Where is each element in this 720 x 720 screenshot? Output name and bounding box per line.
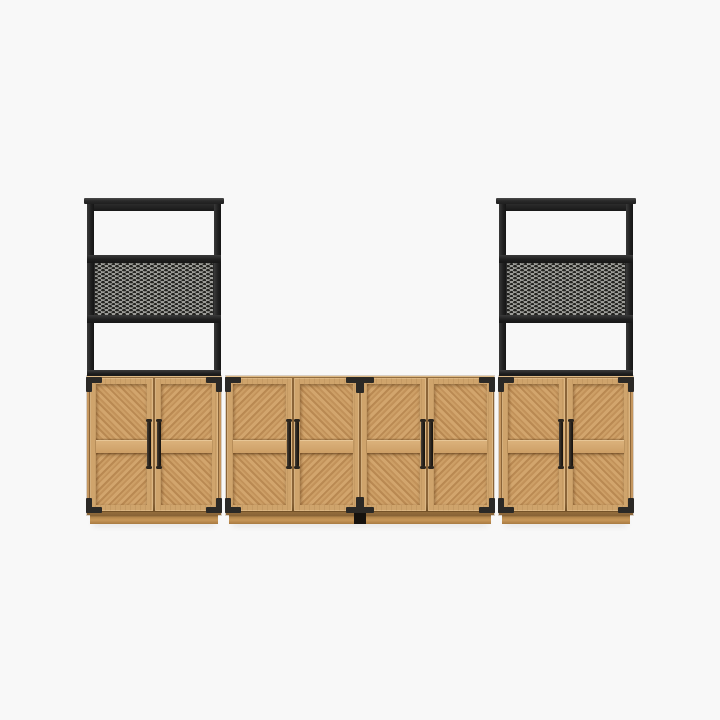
hutch-left-post (499, 200, 506, 376)
corner-bracket-bottom-right (206, 498, 222, 513)
door-panel-upper (573, 384, 624, 440)
door-panel-upper (508, 384, 559, 440)
hutch-top-beam (499, 203, 633, 211)
corner-bracket-top-left (225, 377, 241, 392)
door-handle (157, 421, 161, 467)
cabinet-plinth (90, 515, 218, 524)
hutch-top-beam (87, 203, 221, 211)
corner-bracket-top-right (206, 377, 222, 392)
corner-bracket-top-left (86, 377, 102, 392)
door-panel (300, 384, 353, 505)
console-door-1 (227, 378, 292, 511)
cabinet-right-door (155, 378, 218, 511)
console-door-4 (428, 378, 493, 511)
door-panel-upper (161, 384, 212, 440)
hutch-middle-shelf (499, 255, 633, 263)
hutch-mesh-panel (506, 261, 626, 318)
door-panel-upper (96, 384, 147, 440)
door-middle-rail (508, 440, 559, 453)
hutch-right-post (214, 200, 221, 376)
furniture-product-image (0, 0, 720, 720)
door-middle-rail (300, 440, 353, 453)
hutch-base-rail (87, 370, 221, 376)
door-panel-lower (573, 453, 624, 505)
corner-bracket-bottom-right (479, 498, 495, 513)
door-handle (559, 421, 563, 467)
corner-bracket-top-right (618, 377, 634, 392)
door-handle (287, 421, 291, 467)
door-handle (147, 421, 151, 467)
hutch-lower-shelf (87, 315, 221, 323)
plinth-center-gap (354, 513, 366, 524)
door-panel-upper (434, 384, 487, 440)
door-panel (434, 384, 487, 505)
door-middle-rail (434, 440, 487, 453)
center-bracket-bottom (346, 497, 374, 513)
hutch-lower-shelf (499, 315, 633, 323)
corner-bracket-bottom-right (618, 498, 634, 513)
door-middle-rail (367, 440, 420, 453)
hutch-middle-shelf (87, 255, 221, 263)
hutch-base-rail (499, 370, 633, 376)
right-tower-unit (496, 198, 636, 524)
door-handle (421, 421, 425, 467)
door-panel-lower (508, 453, 559, 505)
center-media-console (226, 376, 494, 524)
door-panel (573, 384, 624, 505)
door-panel (96, 384, 147, 505)
door-panel-lower (367, 453, 420, 505)
door-handle (429, 421, 433, 467)
left-tower-unit (84, 198, 224, 524)
hutch-mesh-panel (94, 261, 214, 318)
center-bracket-top (346, 377, 374, 393)
door-middle-rail (233, 440, 286, 453)
hutch-top-shelf (496, 198, 636, 204)
cabinet-left-door (502, 378, 565, 511)
right-cabinet (499, 376, 633, 524)
door-panel-upper (367, 384, 420, 440)
door-panel-upper (233, 384, 286, 440)
console-door-3 (361, 378, 426, 511)
door-panel (367, 384, 420, 505)
cabinet-left-door (90, 378, 153, 511)
corner-bracket-bottom-left (225, 498, 241, 513)
hutch-left-post (87, 200, 94, 376)
cabinet-right-door (567, 378, 630, 511)
door-panel (233, 384, 286, 505)
cabinet-plinth (502, 515, 630, 524)
left-cabinet (87, 376, 221, 524)
corner-bracket-top-left (498, 377, 514, 392)
door-panel (161, 384, 212, 505)
hutch-right-post (626, 200, 633, 376)
corner-bracket-top-right (479, 377, 495, 392)
corner-bracket-bottom-left (498, 498, 514, 513)
door-middle-rail (96, 440, 147, 453)
door-panel-lower (96, 453, 147, 505)
door-panel-lower (161, 453, 212, 505)
door-panel (508, 384, 559, 505)
corner-bracket-bottom-left (86, 498, 102, 513)
door-handle (295, 421, 299, 467)
door-handle (569, 421, 573, 467)
door-middle-rail (573, 440, 624, 453)
console-door-2 (294, 378, 359, 511)
console-plinth (229, 515, 491, 524)
door-middle-rail (161, 440, 212, 453)
hutch-top-shelf (84, 198, 224, 204)
